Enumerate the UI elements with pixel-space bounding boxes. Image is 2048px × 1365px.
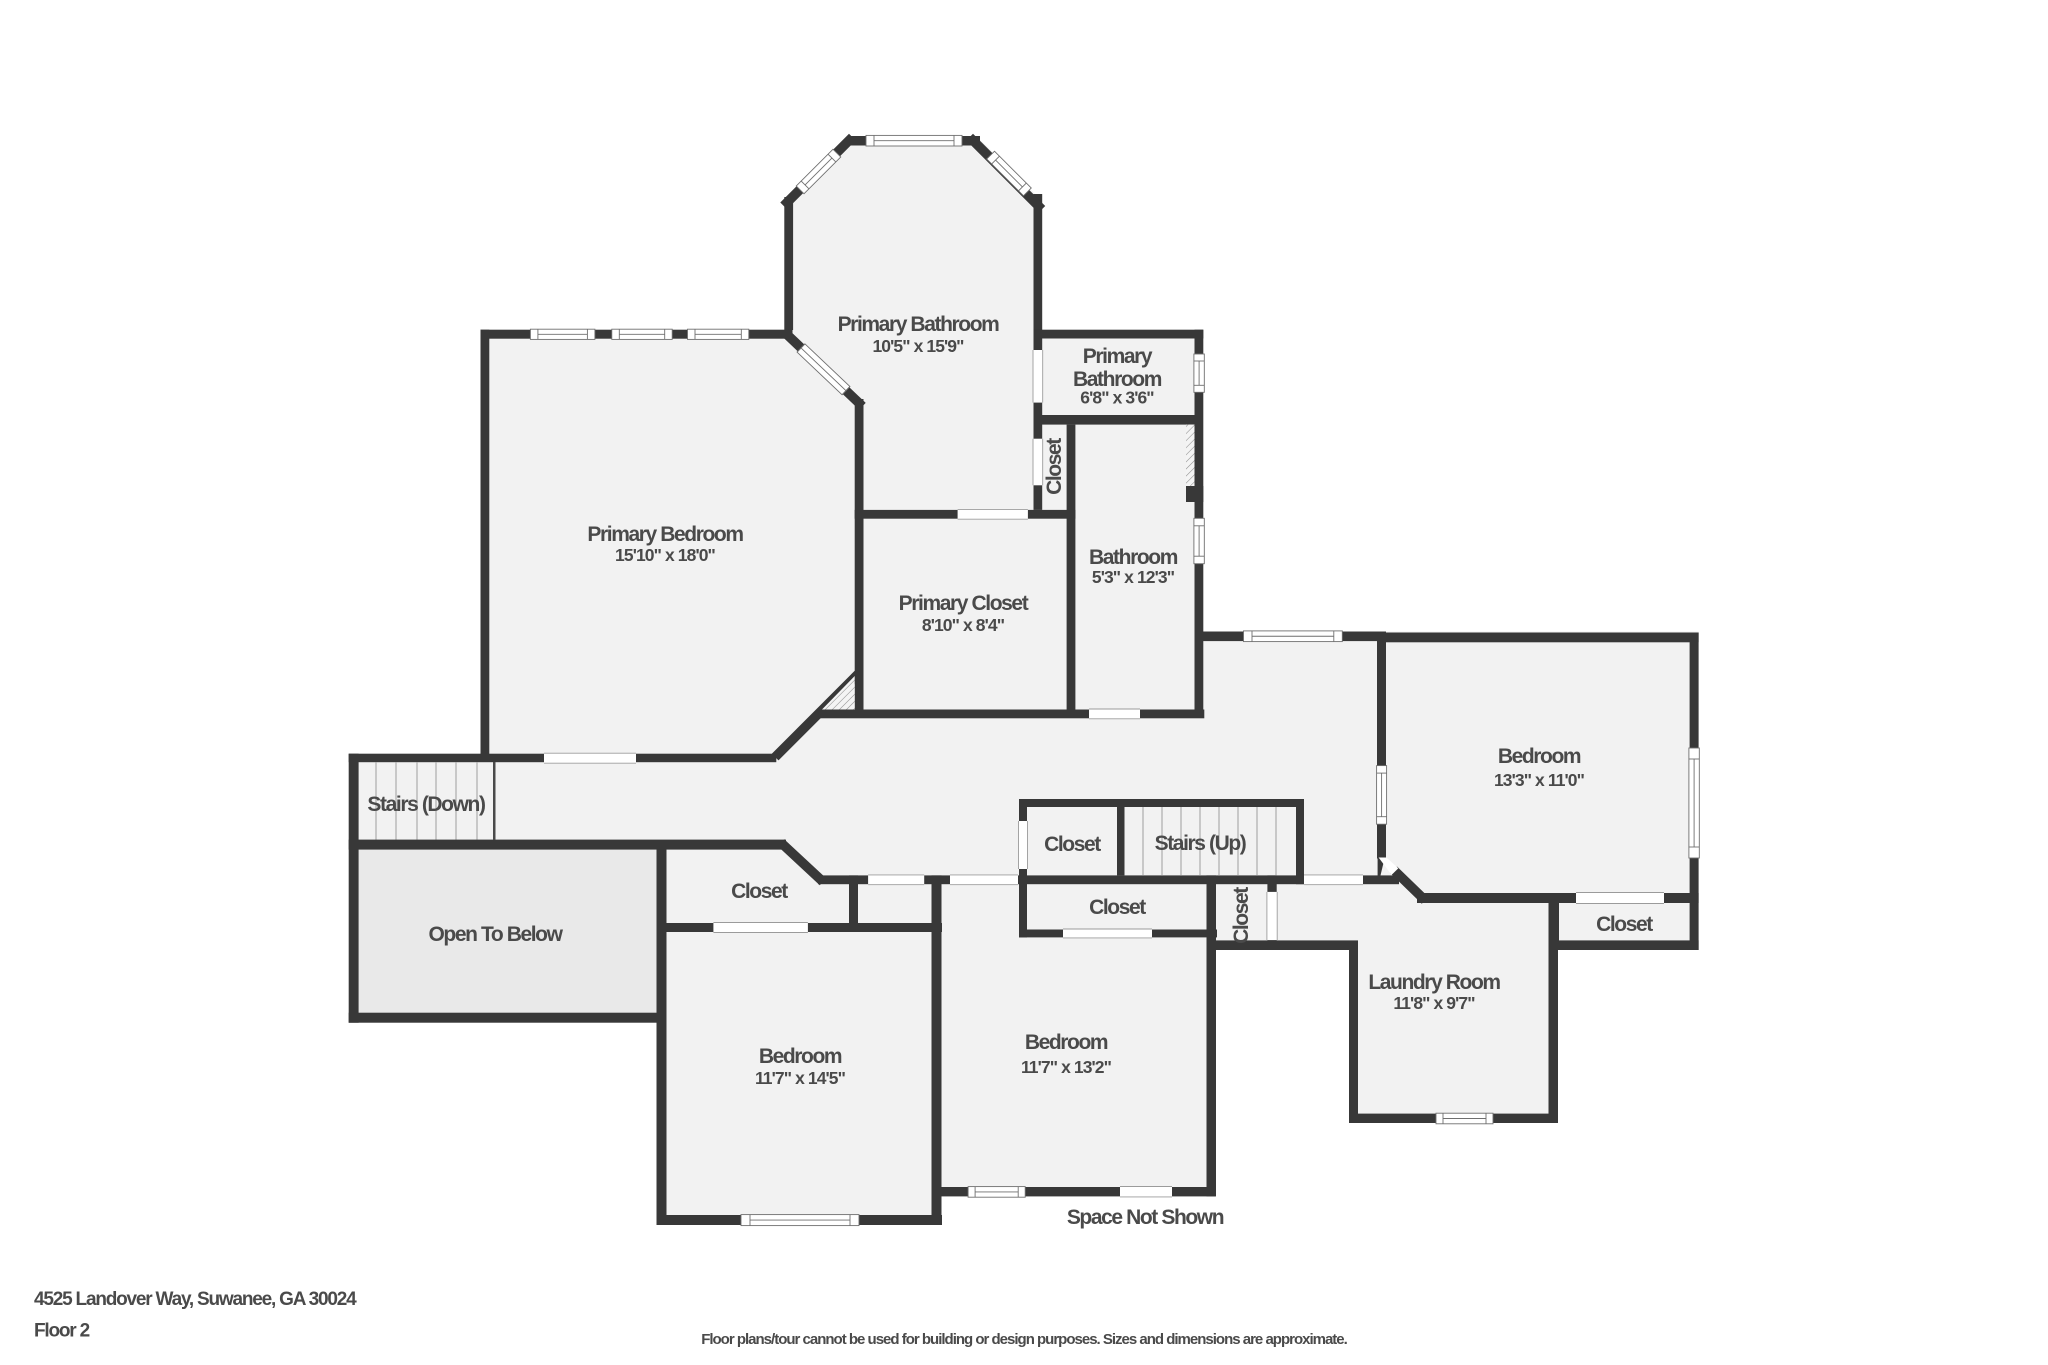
svg-text:Stairs (Down): Stairs (Down) (367, 793, 485, 816)
svg-text:5'3" x 12'3": 5'3" x 12'3" (1092, 567, 1175, 587)
svg-text:13'3" x 11'0": 13'3" x 11'0" (1494, 770, 1585, 790)
svg-text:Bedroom: Bedroom (759, 1045, 842, 1068)
svg-text:Bedroom: Bedroom (1025, 1031, 1108, 1054)
svg-text:6'8" x 3'6": 6'8" x 3'6" (1080, 388, 1154, 408)
svg-text:Closet: Closet (1230, 887, 1253, 944)
svg-text:Closet: Closet (731, 880, 788, 903)
svg-text:Space Not Shown: Space Not Shown (1067, 1206, 1224, 1229)
svg-text:Primary Closet: Primary Closet (899, 592, 1029, 615)
svg-text:15'10" x 18'0": 15'10" x 18'0" (615, 545, 716, 565)
svg-text:Primary Bathroom: Primary Bathroom (838, 313, 1000, 336)
svg-text:Laundry Room: Laundry Room (1368, 971, 1500, 994)
svg-text:8'10" x 8'4": 8'10" x 8'4" (922, 615, 1005, 635)
svg-text:11'7" x 13'2": 11'7" x 13'2" (1021, 1057, 1112, 1077)
svg-text:Bathroom: Bathroom (1089, 546, 1178, 569)
svg-text:Stairs (Up): Stairs (Up) (1155, 832, 1246, 855)
svg-text:Bedroom: Bedroom (1498, 745, 1581, 768)
svg-text:Primary: Primary (1083, 345, 1153, 368)
svg-text:Floor plans/tour cannot be use: Floor plans/tour cannot be used for buil… (701, 1331, 1347, 1348)
svg-text:11'7" x 14'5": 11'7" x 14'5" (755, 1068, 846, 1088)
svg-text:4525 Landover Way, Suwanee, GA: 4525 Landover Way, Suwanee, GA 30024 (34, 1289, 357, 1310)
svg-text:10'5" x 15'9": 10'5" x 15'9" (872, 336, 964, 356)
svg-text:Primary Bedroom: Primary Bedroom (587, 523, 743, 546)
svg-text:Floor 2: Floor 2 (34, 1321, 90, 1342)
svg-text:Closet: Closet (1089, 896, 1146, 919)
svg-text:Closet: Closet (1044, 833, 1101, 856)
svg-text:Open To Below: Open To Below (428, 923, 563, 946)
svg-text:11'8" x 9'7": 11'8" x 9'7" (1393, 993, 1475, 1013)
svg-text:Closet: Closet (1596, 913, 1653, 936)
svg-text:Closet: Closet (1043, 438, 1066, 495)
